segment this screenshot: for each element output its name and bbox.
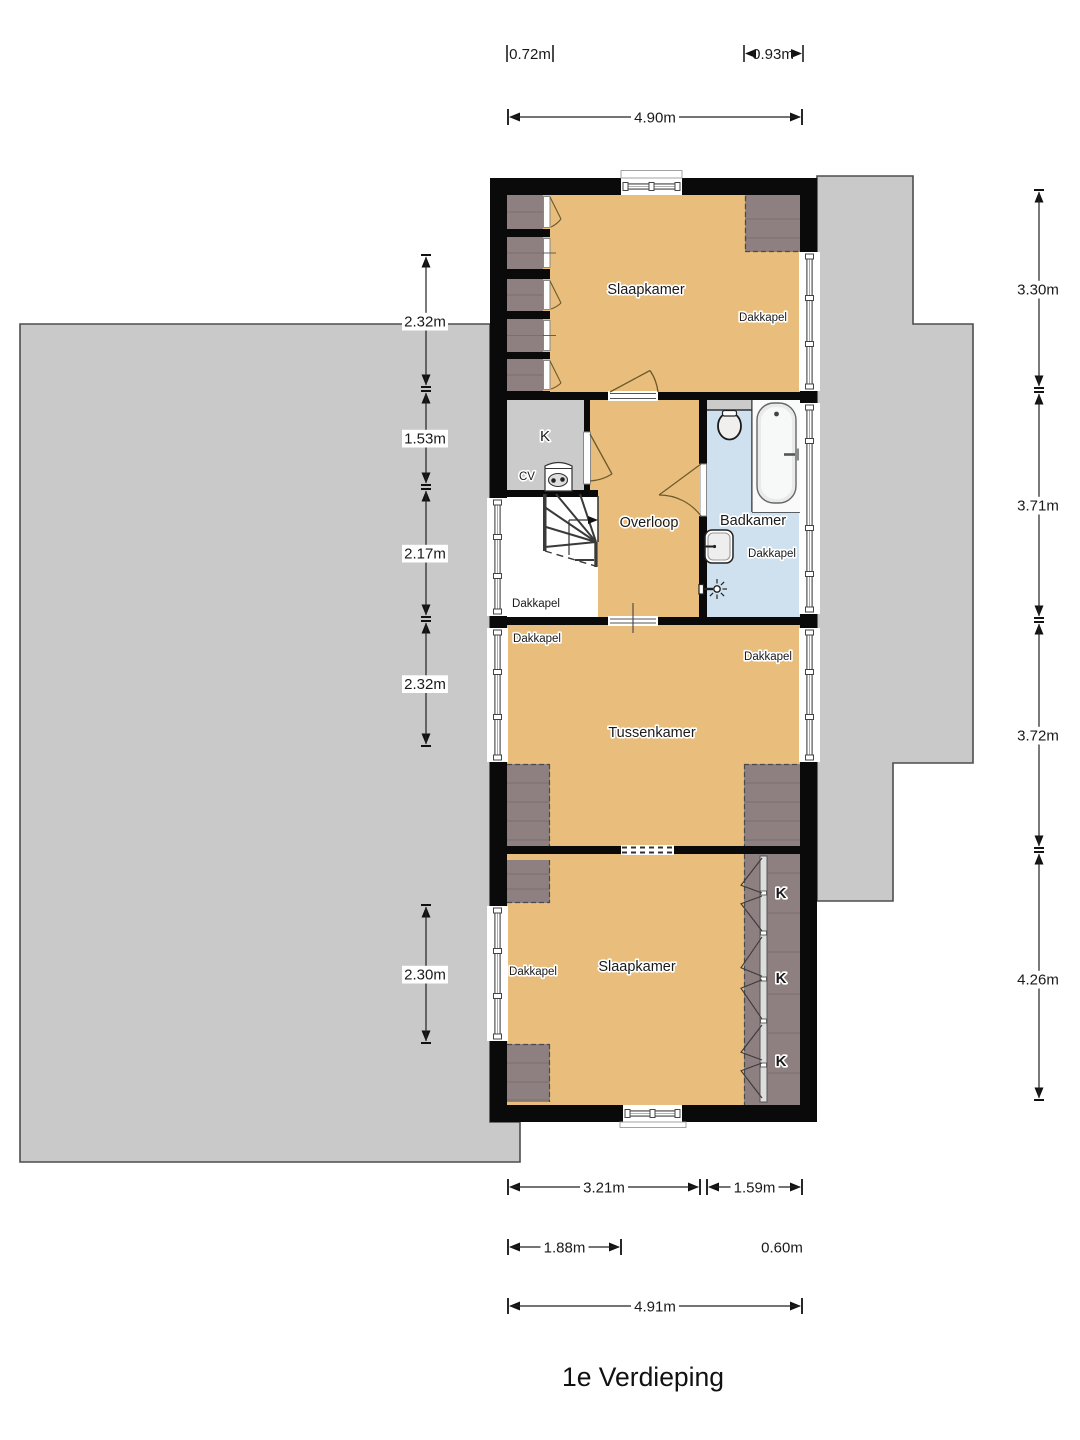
svg-text:4.90m: 4.90m (634, 110, 676, 127)
svg-text:3.72m: 3.72m (1017, 728, 1059, 745)
svg-text:Slaapkamer: Slaapkamer (598, 959, 676, 975)
svg-text:4.91m: 4.91m (634, 1299, 676, 1316)
svg-text:K: K (776, 885, 787, 902)
svg-text:1.88m: 1.88m (544, 1240, 586, 1257)
svg-text:Dakkapel: Dakkapel (739, 312, 787, 324)
svg-text:2.32m: 2.32m (404, 676, 446, 693)
svg-text:Dakkapel: Dakkapel (509, 966, 557, 978)
svg-text:3.21m: 3.21m (583, 1180, 625, 1197)
svg-text:0.72m: 0.72m (509, 46, 551, 63)
svg-text:Overloop: Overloop (620, 515, 679, 531)
svg-text:Dakkapel: Dakkapel (513, 633, 561, 645)
svg-text:2.30m: 2.30m (404, 967, 446, 984)
svg-text:0.60m: 0.60m (761, 1240, 803, 1257)
svg-text:0.93m: 0.93m (752, 46, 794, 63)
svg-text:1e Verdieping: 1e Verdieping (562, 1362, 724, 1392)
svg-text:2.32m: 2.32m (404, 314, 446, 331)
svg-text:Dakkapel: Dakkapel (748, 548, 796, 560)
svg-text:K: K (776, 1053, 787, 1070)
svg-text:1.53m: 1.53m (404, 431, 446, 448)
svg-text:Dakkapel: Dakkapel (512, 598, 560, 610)
svg-text:4.26m: 4.26m (1017, 972, 1059, 989)
svg-text:Badkamer: Badkamer (720, 513, 786, 529)
svg-text:K: K (776, 970, 787, 987)
svg-text:2.17m: 2.17m (404, 546, 446, 563)
svg-text:1.59m: 1.59m (734, 1180, 776, 1197)
svg-text:3.30m: 3.30m (1017, 282, 1059, 299)
svg-text:Tussenkamer: Tussenkamer (608, 725, 695, 741)
svg-text:Slaapkamer: Slaapkamer (607, 282, 685, 298)
svg-text:Dakkapel: Dakkapel (744, 651, 792, 663)
svg-text:CV: CV (519, 471, 535, 483)
svg-text:K: K (540, 428, 550, 445)
svg-text:3.71m: 3.71m (1017, 498, 1059, 515)
